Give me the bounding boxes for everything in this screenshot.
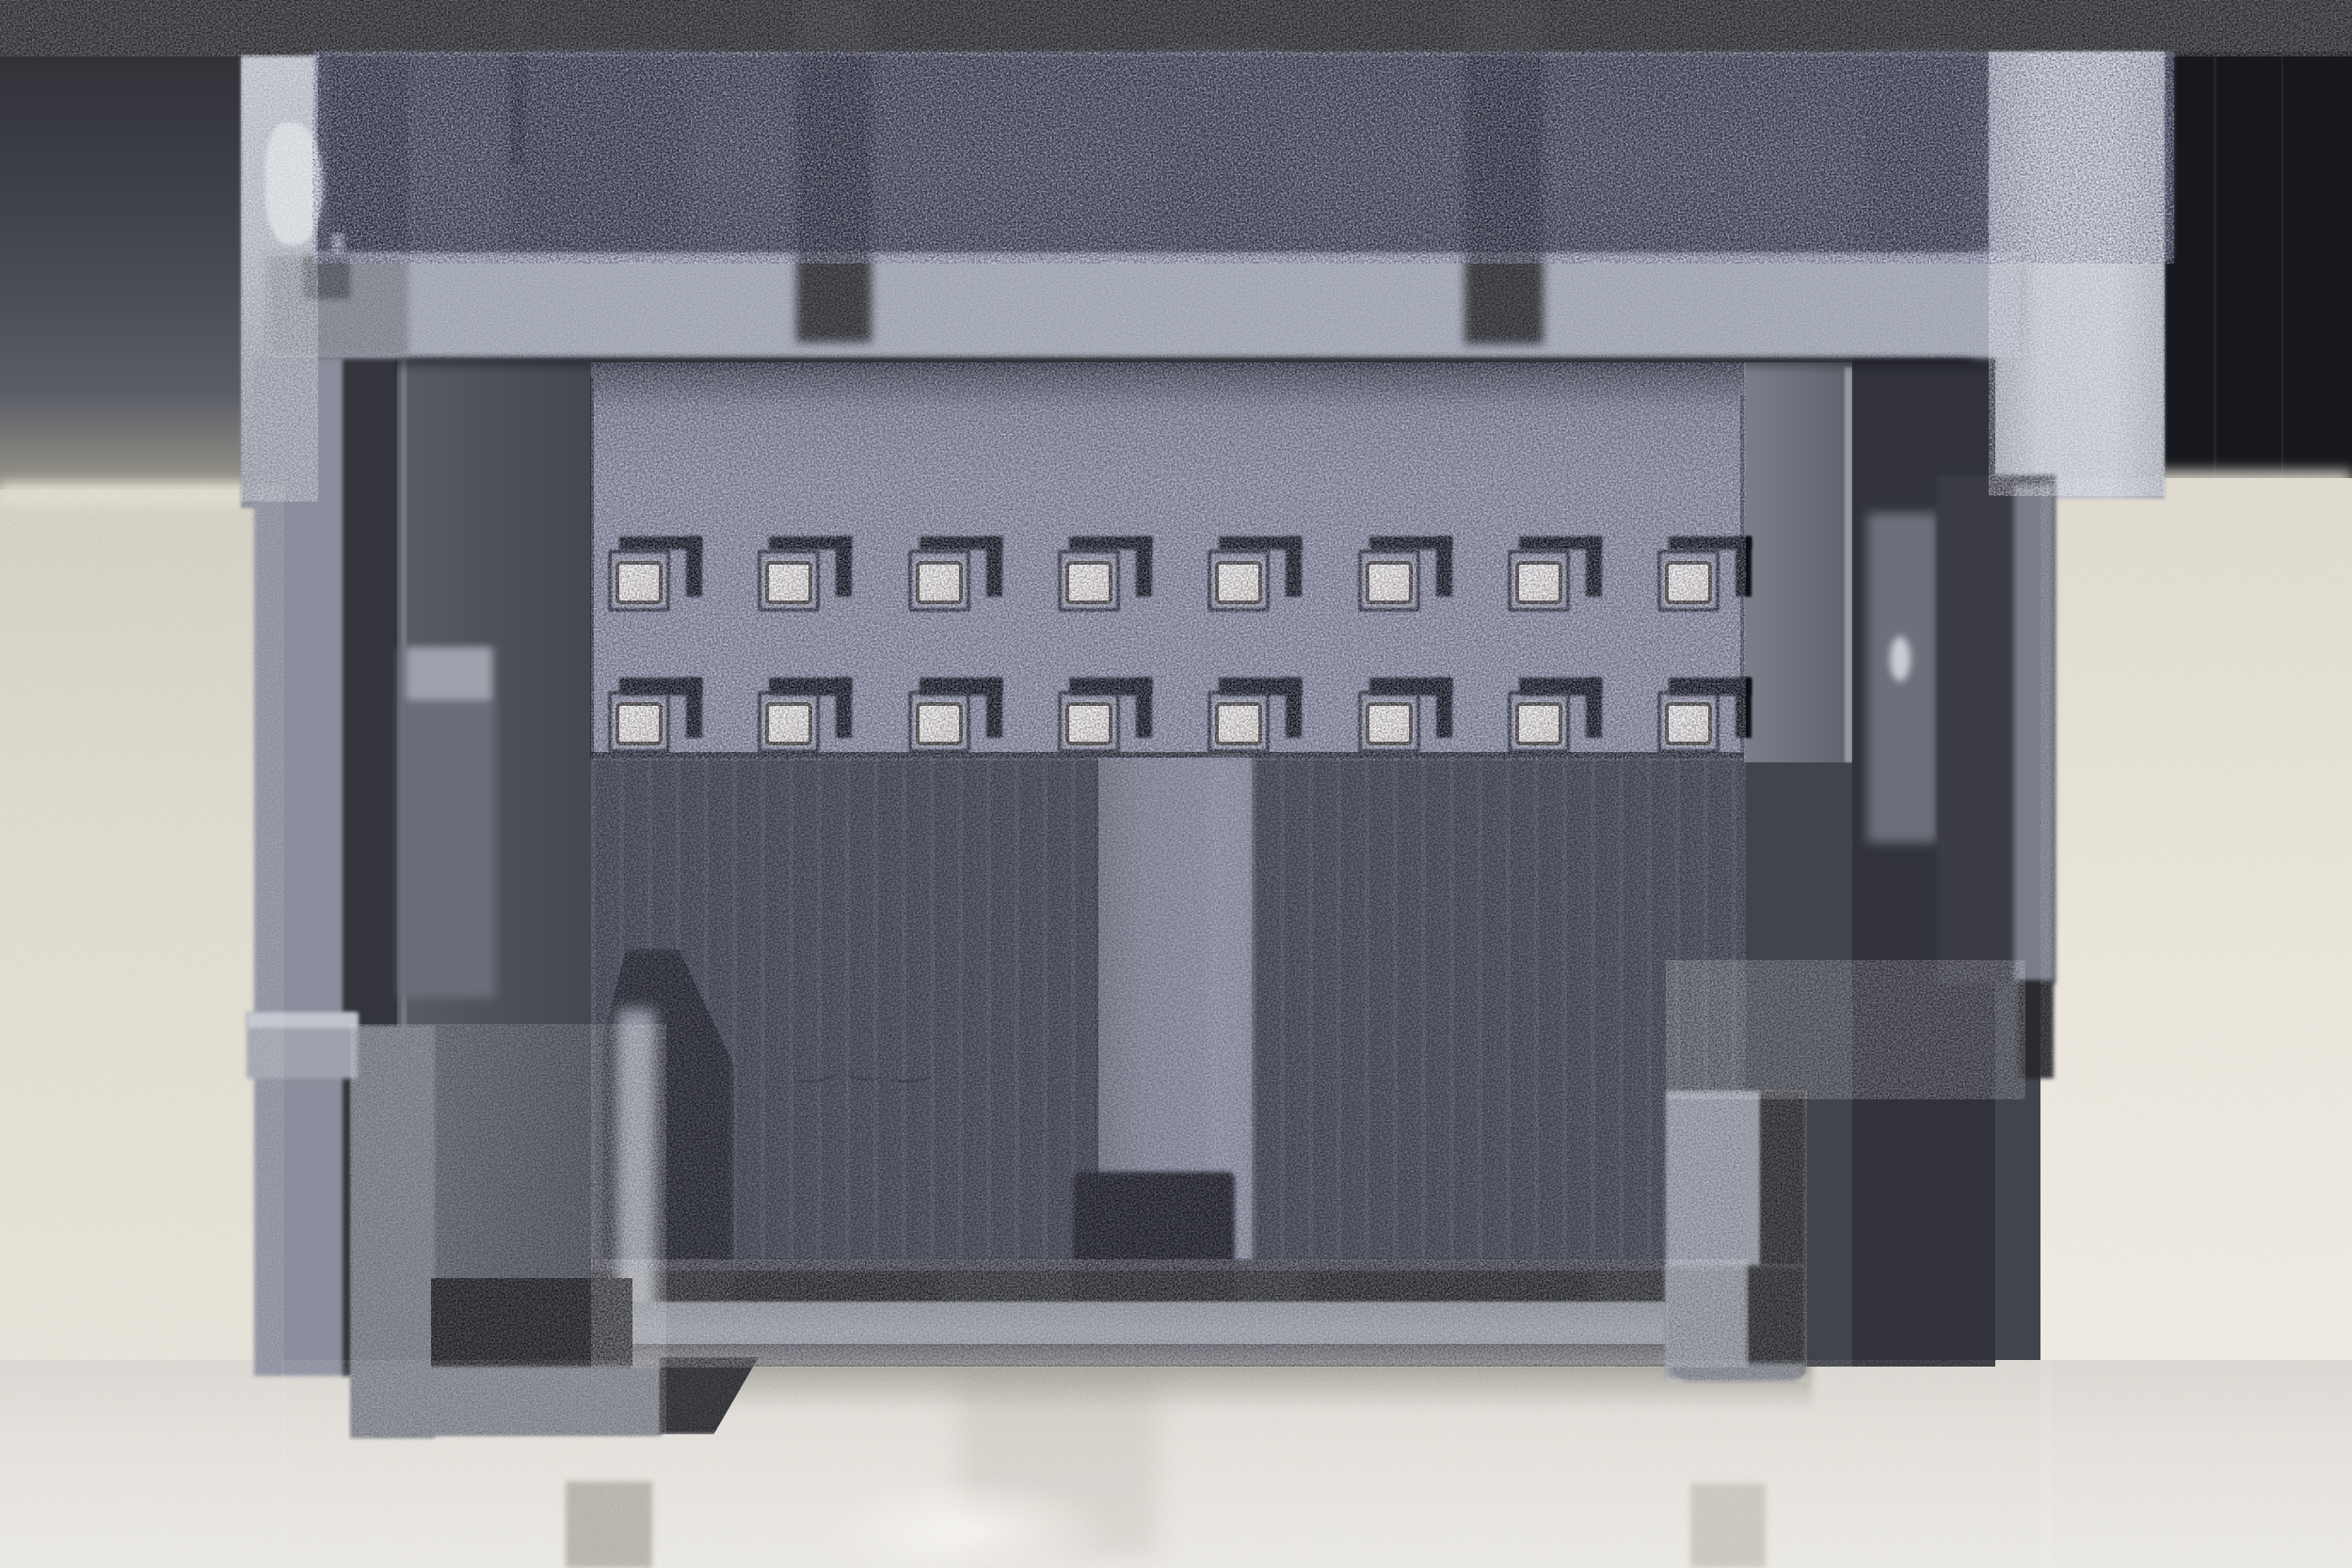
pin-hole-shadow-right (1286, 536, 1302, 597)
pin-contact-upper-row-1 (602, 542, 708, 636)
bottom-gray-tab (566, 1481, 652, 1568)
pin-hole-shadow-right (1136, 536, 1152, 597)
pin-metal-contact (616, 561, 663, 604)
pin-hole-shadow-right (1586, 678, 1602, 738)
right-wall-lower-highlight (2014, 485, 2054, 982)
pin-contact-upper-row-3 (903, 542, 1008, 636)
pin-metal-contact (1215, 561, 1262, 604)
pin-contact-upper-row-8 (1652, 542, 1757, 636)
pin-metal-contact (616, 702, 663, 745)
pin-metal-contact (1665, 561, 1712, 604)
pin-hole-shadow-right (1136, 678, 1152, 738)
pin-contact-lower-row-6 (1352, 683, 1458, 777)
rim-bar-right-end (1958, 253, 2024, 357)
pin-hole-shadow-right (1286, 678, 1302, 738)
bottom-beige-tab (1690, 1483, 1766, 1568)
pin-contact-lower-row-1 (602, 683, 708, 777)
right-foot-dark-piece (1747, 1266, 1805, 1364)
pin-metal-contact (1366, 702, 1413, 745)
pin-metal-contact (765, 561, 812, 604)
pin-metal-contact (1065, 561, 1112, 604)
right-step-bar (1666, 962, 2025, 1098)
left-step-tab-highlight (247, 1013, 358, 1028)
pin-contact-lower-row-8 (1652, 683, 1757, 777)
pin-contact-lower-row-7 (1502, 683, 1608, 777)
pin-hole-shadow-right (686, 678, 702, 738)
pin-metal-contact (1065, 702, 1112, 745)
pin-metal-contact (916, 561, 963, 604)
pin-hole-shadow-right (836, 536, 852, 597)
pin-contact-upper-row-5 (1202, 542, 1307, 636)
pin-contact-upper-row-4 (1052, 542, 1158, 636)
pin-hole-shadow-right (986, 536, 1002, 597)
pin-metal-contact (1515, 561, 1562, 604)
foreground-thin-pin (510, 0, 525, 166)
pin-hole-shadow-right (1736, 536, 1752, 597)
rim-bar-notch (303, 256, 350, 299)
pin-metal-contact (1665, 702, 1712, 745)
pin-metal-contact (1366, 561, 1413, 604)
pin-contact-upper-row-6 (1352, 542, 1458, 636)
pin-hole-shadow-right (986, 678, 1002, 738)
pin-hole-shadow-right (1436, 678, 1452, 738)
pin-contact-lower-row-2 (752, 683, 857, 777)
pin-contact-lower-row-5 (1202, 683, 1307, 777)
pin-hole-shadow-right (1586, 536, 1602, 597)
pin-metal-contact (1515, 702, 1562, 745)
left-foot-bottom (354, 1367, 666, 1436)
bottom-light-spot (817, 1476, 1118, 1568)
right-step-end-cap (2018, 981, 2054, 1079)
pin-metal-contact (1215, 702, 1262, 745)
pin-metal-contact (916, 702, 963, 745)
pin-hole-shadow-right (1436, 536, 1452, 597)
pin-contact-upper-row-7 (1502, 542, 1608, 636)
connector-macro-photo (0, 0, 2352, 1568)
pin-hole-shadow-right (686, 536, 702, 597)
pin-contact-lower-row-3 (903, 683, 1008, 777)
foreground-post-right (1464, 0, 1544, 344)
pin-contact-upper-row-2 (752, 542, 857, 636)
pin-hole-shadow-right (836, 678, 852, 738)
top-rim-bar (267, 253, 2020, 357)
left-foot-cavity (431, 1278, 632, 1372)
pin-hole-shadow-right (1736, 678, 1752, 738)
foreground-post-left (796, 0, 872, 343)
pin-metal-contact (765, 702, 812, 745)
pin-contact-lower-row-4 (1052, 683, 1158, 777)
